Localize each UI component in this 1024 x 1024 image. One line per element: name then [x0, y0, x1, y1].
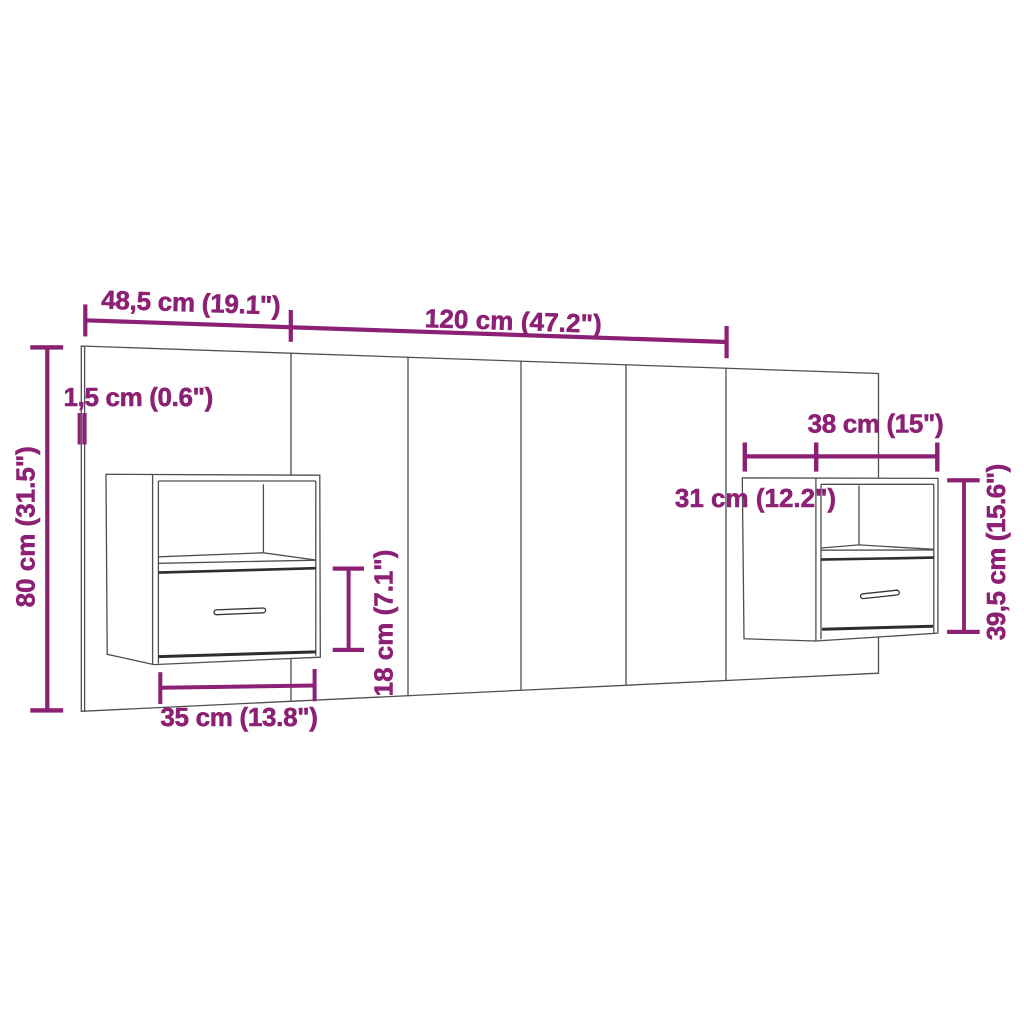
svg-text:80 cm (31.5"): 80 cm (31.5") [11, 446, 41, 607]
svg-text:39,5 cm (15.6"): 39,5 cm (15.6") [981, 464, 1011, 640]
svg-text:35 cm (13.8"): 35 cm (13.8") [160, 702, 317, 732]
svg-text:38 cm (15"): 38 cm (15") [808, 409, 944, 439]
svg-text:1,5 cm (0.6"): 1,5 cm (0.6") [64, 382, 213, 412]
svg-text:48,5 cm (19.1"): 48,5 cm (19.1") [101, 285, 281, 321]
svg-text:31 cm (12.2"): 31 cm (12.2") [675, 483, 836, 513]
svg-text:18 cm (7.1"): 18 cm (7.1") [368, 550, 398, 697]
svg-text:120 cm (47.2"): 120 cm (47.2") [424, 303, 602, 339]
